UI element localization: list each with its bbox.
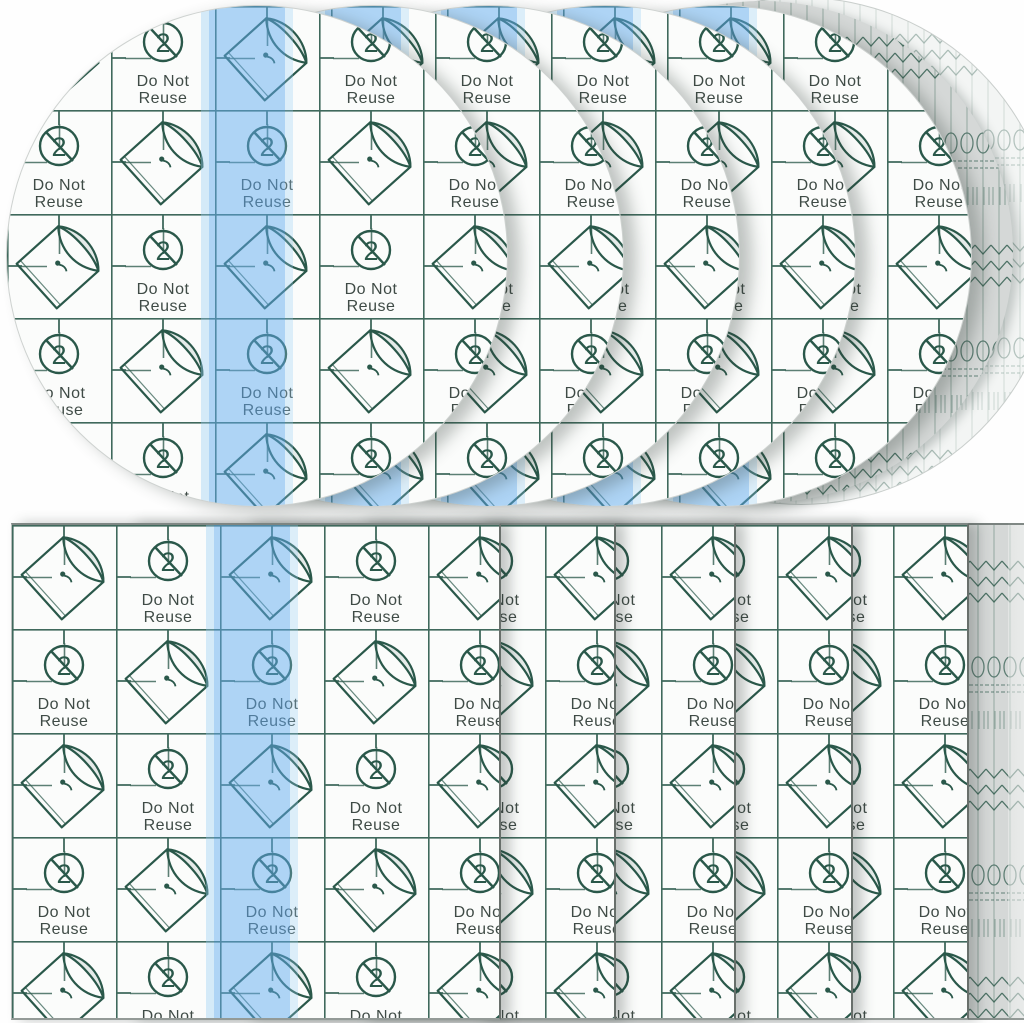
round-patch-1-print <box>7 6 507 506</box>
liner-blue-stripe <box>209 6 285 506</box>
rect-sheet-1 <box>11 523 501 1020</box>
rect-sheet-1-print <box>12 525 499 1018</box>
liner-blue-stripe <box>214 525 290 1018</box>
round-patch-1 <box>6 5 508 507</box>
adhesive-bandage-product-photo <box>0 0 1024 1023</box>
